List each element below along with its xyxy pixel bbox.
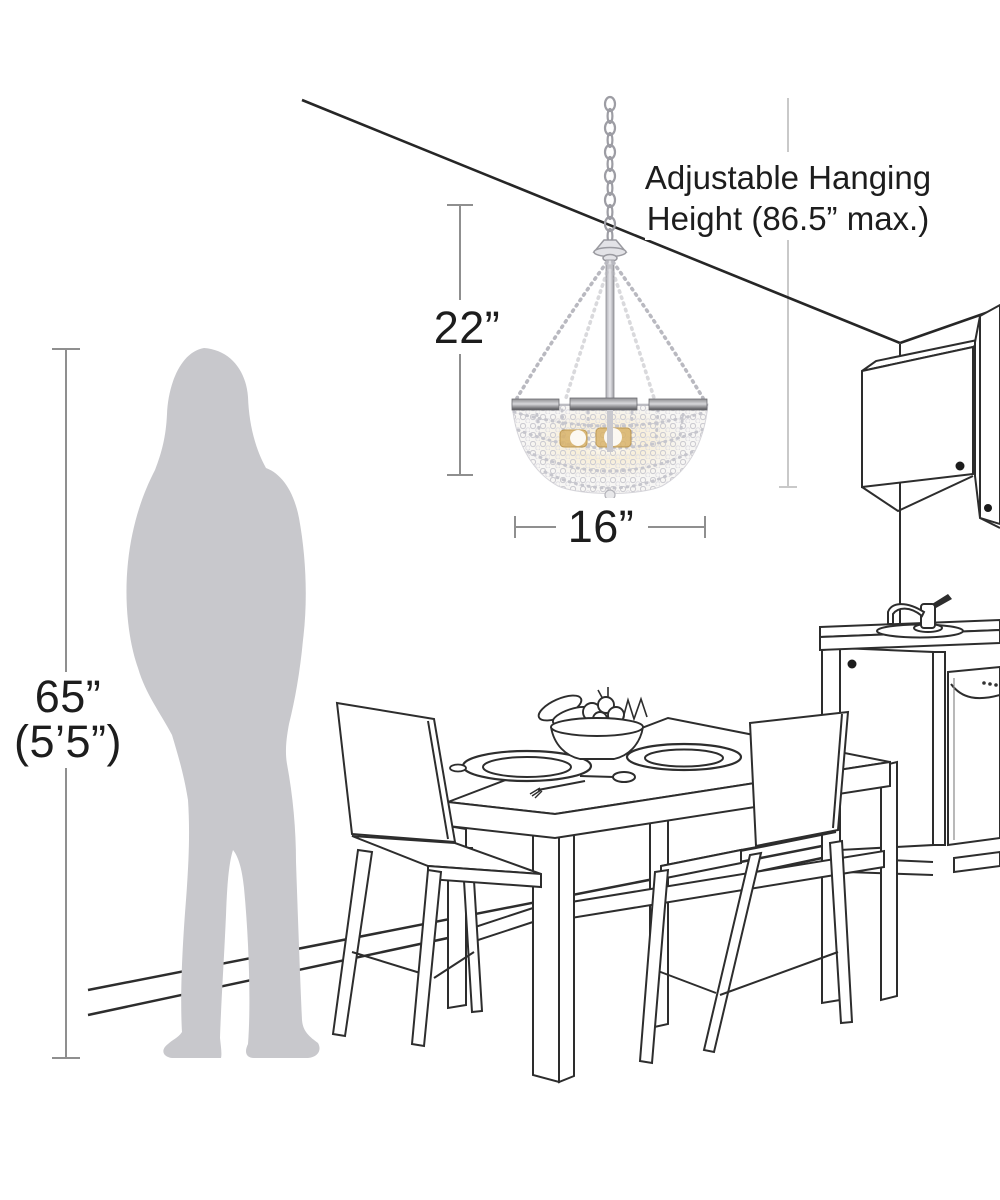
person-height-label: 65” (5’5”) [14, 671, 122, 768]
person-height-ftin: (5’5”) [14, 716, 122, 767]
chrome-rim-band [512, 398, 708, 410]
chandelier-chain [605, 97, 615, 243]
person-silhouette [126, 348, 319, 1058]
fixture-height-value: 22” [434, 302, 501, 353]
upper-cabinet-left [862, 338, 987, 511]
cabinet-knob [848, 660, 857, 669]
cabinet-knob [956, 462, 965, 471]
scene-illustration: Adjustable Hanging Height (86.5” max.) 2… [0, 0, 1000, 1200]
fixture-height-label: 22” [434, 300, 501, 354]
chandelier-canopy [594, 240, 626, 262]
person-height-value: 65” [35, 671, 102, 722]
dimension-diagram: Adjustable Hanging Height (86.5” max.) 2… [0, 0, 1000, 1200]
dishwasher [948, 667, 1000, 872]
stem-front [607, 410, 613, 452]
hanging-height-label-line2: Height (86.5” max.) [647, 200, 929, 237]
fixture-width-label: 16” [556, 498, 648, 552]
shaker [450, 765, 466, 772]
hanging-height-label-line1: Adjustable Hanging [645, 159, 931, 196]
fixture-width-value: 16” [568, 501, 635, 552]
upper-cabinet-right [975, 305, 1000, 528]
hanging-height-label: Adjustable Hanging Height (86.5” max.) [645, 152, 935, 240]
cabinet-knob [984, 504, 992, 512]
fruit-bowl [535, 687, 647, 759]
